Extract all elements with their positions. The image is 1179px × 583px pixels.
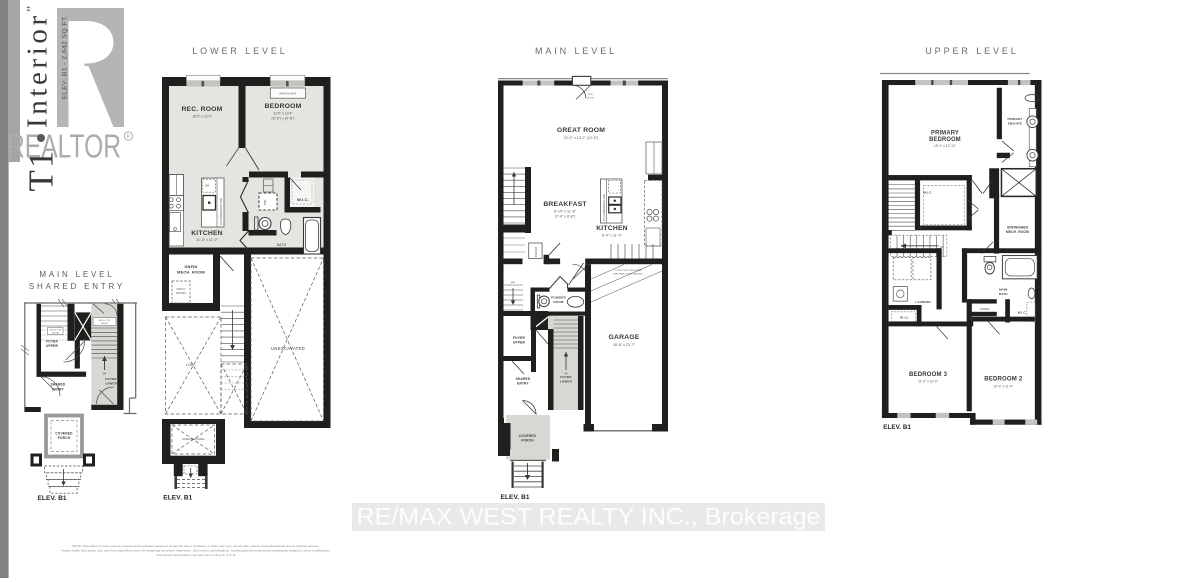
svg-text:UPPER: UPPER bbox=[513, 341, 525, 345]
svg-text:Actual usable floor space may: Actual usable floor space may vary from … bbox=[61, 549, 330, 553]
svg-text:Unit setback and roofline may: Unit setback and roofline may vary due t… bbox=[156, 553, 237, 557]
svg-text:ENSUITE: ENSUITE bbox=[1008, 121, 1022, 125]
svg-text:ELEV. B1: ELEV. B1 bbox=[163, 495, 192, 502]
svg-text:MECH. ROOM: MECH. ROOM bbox=[177, 270, 205, 275]
svg-text:WINDOW SEAT: WINDOW SEAT bbox=[279, 93, 297, 96]
svg-text:DW: DW bbox=[205, 184, 210, 188]
svg-text:BSD: BSD bbox=[263, 200, 267, 205]
svg-text:BROOM: BROOM bbox=[534, 247, 538, 257]
svg-text:PORCH: PORCH bbox=[58, 436, 71, 440]
svg-text:MAIN LEVEL: MAIN LEVEL bbox=[39, 270, 114, 279]
svg-text:ENTRY: ENTRY bbox=[517, 382, 529, 386]
svg-text:W.I.C.: W.I.C. bbox=[1018, 311, 1027, 315]
svg-text:COVERED: COVERED bbox=[519, 434, 537, 438]
svg-text:11'4" x 12'4": 11'4" x 12'4" bbox=[273, 112, 293, 116]
svg-text:KITCHEN: KITCHEN bbox=[191, 230, 223, 237]
svg-text:DOOR: DOOR bbox=[587, 98, 594, 100]
svg-text:ROOM: ROOM bbox=[553, 300, 563, 304]
svg-text:11'-0" x 10'-0": 11'-0" x 10'-0" bbox=[918, 380, 939, 384]
svg-text:BREAKFAST: BREAKFAST bbox=[543, 201, 587, 208]
svg-text:BEDROOM: BEDROOM bbox=[929, 137, 961, 143]
svg-text:6R: 6R bbox=[103, 373, 106, 376]
svg-text:FOYER: FOYER bbox=[105, 377, 117, 381]
svg-text:COVERED: COVERED bbox=[55, 432, 73, 436]
svg-text:LOWER: LOWER bbox=[105, 382, 118, 386]
svg-text:BEDROOM 2: BEDROOM 2 bbox=[984, 376, 1023, 383]
svg-text:SHARED ENTRY: SHARED ENTRY bbox=[29, 282, 125, 291]
svg-text:W.I.C.: W.I.C. bbox=[297, 197, 309, 202]
svg-text:FOYER: FOYER bbox=[46, 340, 58, 344]
svg-text:40R @ 7 7/8: 40R @ 7 7/8 bbox=[99, 320, 111, 322]
svg-text:SHARED: SHARED bbox=[516, 377, 531, 381]
svg-text:(8'-8") x (9'-8"): (8'-8") x (9'-8") bbox=[272, 117, 295, 121]
svg-text:MECH. ROOM: MECH. ROOM bbox=[1006, 230, 1029, 234]
svg-text:CLUB DOOR OVER STAIR: CLUB DOOR OVER STAIR bbox=[615, 269, 642, 272]
svg-text:PORCH: PORCH bbox=[521, 439, 534, 443]
svg-text:16R UP: 16R UP bbox=[101, 323, 109, 325]
svg-text:ELEV. B1: ELEV. B1 bbox=[38, 495, 67, 502]
svg-text:LAUNDRY: LAUNDRY bbox=[915, 300, 931, 304]
svg-text:40R @ 7 7/8: 40R @ 7 7/8 bbox=[50, 330, 62, 332]
svg-text:PRIMARY: PRIMARY bbox=[1007, 117, 1022, 121]
svg-text:T1: T1 bbox=[22, 149, 61, 192]
svg-text:FLUSH BREAKFAST BAR: FLUSH BREAKFAST BAR bbox=[220, 198, 223, 225]
svg-text:UNFINISHED: UNFINISHED bbox=[1007, 225, 1029, 229]
svg-text:REC. ROOM: REC. ROOM bbox=[181, 106, 222, 113]
svg-text:16R DN: 16R DN bbox=[52, 333, 60, 335]
svg-text:AND PANEL OVER LANDING: AND PANEL OVER LANDING bbox=[613, 273, 643, 276]
svg-text:22'-0" x 13'-2" (12'-8"): 22'-0" x 13'-2" (12'-8") bbox=[564, 136, 599, 140]
svg-text:SHARED: SHARED bbox=[51, 383, 66, 387]
svg-text:ELEV. B1: ELEV. B1 bbox=[501, 494, 530, 501]
svg-text:UPPER: UPPER bbox=[46, 344, 58, 348]
svg-text:15'-4" x 12'-10": 15'-4" x 12'-10" bbox=[934, 144, 957, 148]
svg-text:GDN: GDN bbox=[588, 94, 593, 96]
svg-text:LOWER: LOWER bbox=[560, 380, 573, 384]
svg-text:8'-10" x 11'-8": 8'-10" x 11'-8" bbox=[554, 210, 577, 214]
svg-text:BATH: BATH bbox=[999, 292, 1008, 296]
svg-text:PRIMARY: PRIMARY bbox=[931, 130, 959, 136]
svg-text:ELEV. B1 - 2,642 SQ.FT.: ELEV. B1 - 2,642 SQ.FT. bbox=[62, 15, 69, 99]
svg-text:W.I.C.: W.I.C. bbox=[900, 316, 909, 320]
svg-text:UNFIN: UNFIN bbox=[185, 264, 198, 269]
svg-text:NOTE: Orientation of home may: NOTE: Orientation of home may be reverse… bbox=[72, 544, 320, 548]
svg-text:Interior: Interior bbox=[22, 12, 54, 128]
svg-text:KITCHEN: KITCHEN bbox=[596, 225, 628, 232]
svg-text:FOYER: FOYER bbox=[560, 375, 572, 379]
svg-text:R: R bbox=[127, 134, 131, 140]
svg-text:(7'-4" x 8'-8"): (7'-4" x 8'-8") bbox=[555, 215, 576, 219]
svg-text:GREAT ROOM: GREAT ROOM bbox=[557, 127, 605, 134]
svg-text:UNEXCAVATED: UNEXCAVATED bbox=[182, 437, 205, 441]
svg-text:RETURN: RETURN bbox=[176, 292, 186, 295]
svg-text:FOYER: FOYER bbox=[513, 336, 525, 340]
svg-text:8'-4" x 11'-0": 8'-4" x 11'-0" bbox=[602, 234, 623, 238]
svg-text:18'-8" x 23'-7": 18'-8" x 23'-7" bbox=[613, 343, 636, 347]
svg-text:FLUSH BREAKFAST BAR: FLUSH BREAKFAST BAR bbox=[603, 194, 606, 221]
svg-text:LOWER LEVEL: LOWER LEVEL bbox=[192, 46, 287, 56]
svg-text:RE/MAX WEST REALTY INC., Broke: RE/MAX WEST REALTY INC., Brokerage bbox=[357, 504, 821, 531]
svg-text:”: ” bbox=[25, 6, 40, 12]
svg-text:MAIN LEVEL: MAIN LEVEL bbox=[535, 46, 617, 56]
svg-text:UNEXCAVATED: UNEXCAVATED bbox=[271, 346, 305, 351]
svg-text:(6R): (6R) bbox=[511, 282, 516, 284]
svg-text:GARAGE: GARAGE bbox=[608, 334, 639, 341]
svg-text:18'0" x 12'0": 18'0" x 12'0" bbox=[192, 115, 212, 119]
svg-text:BATH: BATH bbox=[277, 243, 287, 247]
svg-text:BEDROOM 3: BEDROOM 3 bbox=[909, 371, 948, 378]
svg-text:SUPPLY: SUPPLY bbox=[176, 288, 186, 291]
svg-text:LINEN: LINEN bbox=[980, 307, 989, 311]
svg-text:BEDROOM: BEDROOM bbox=[265, 103, 302, 110]
svg-text:LOD: LOD bbox=[186, 363, 194, 367]
svg-text:ELEV. B1: ELEV. B1 bbox=[883, 424, 911, 431]
svg-text:11'-8" x 11'-0": 11'-8" x 11'-0" bbox=[196, 238, 218, 242]
svg-text:10'-4" x 11'-0": 10'-4" x 11'-0" bbox=[993, 384, 1014, 388]
svg-text:W.I.C.: W.I.C. bbox=[923, 190, 932, 194]
svg-text:UPPER LEVEL: UPPER LEVEL bbox=[925, 46, 1018, 56]
